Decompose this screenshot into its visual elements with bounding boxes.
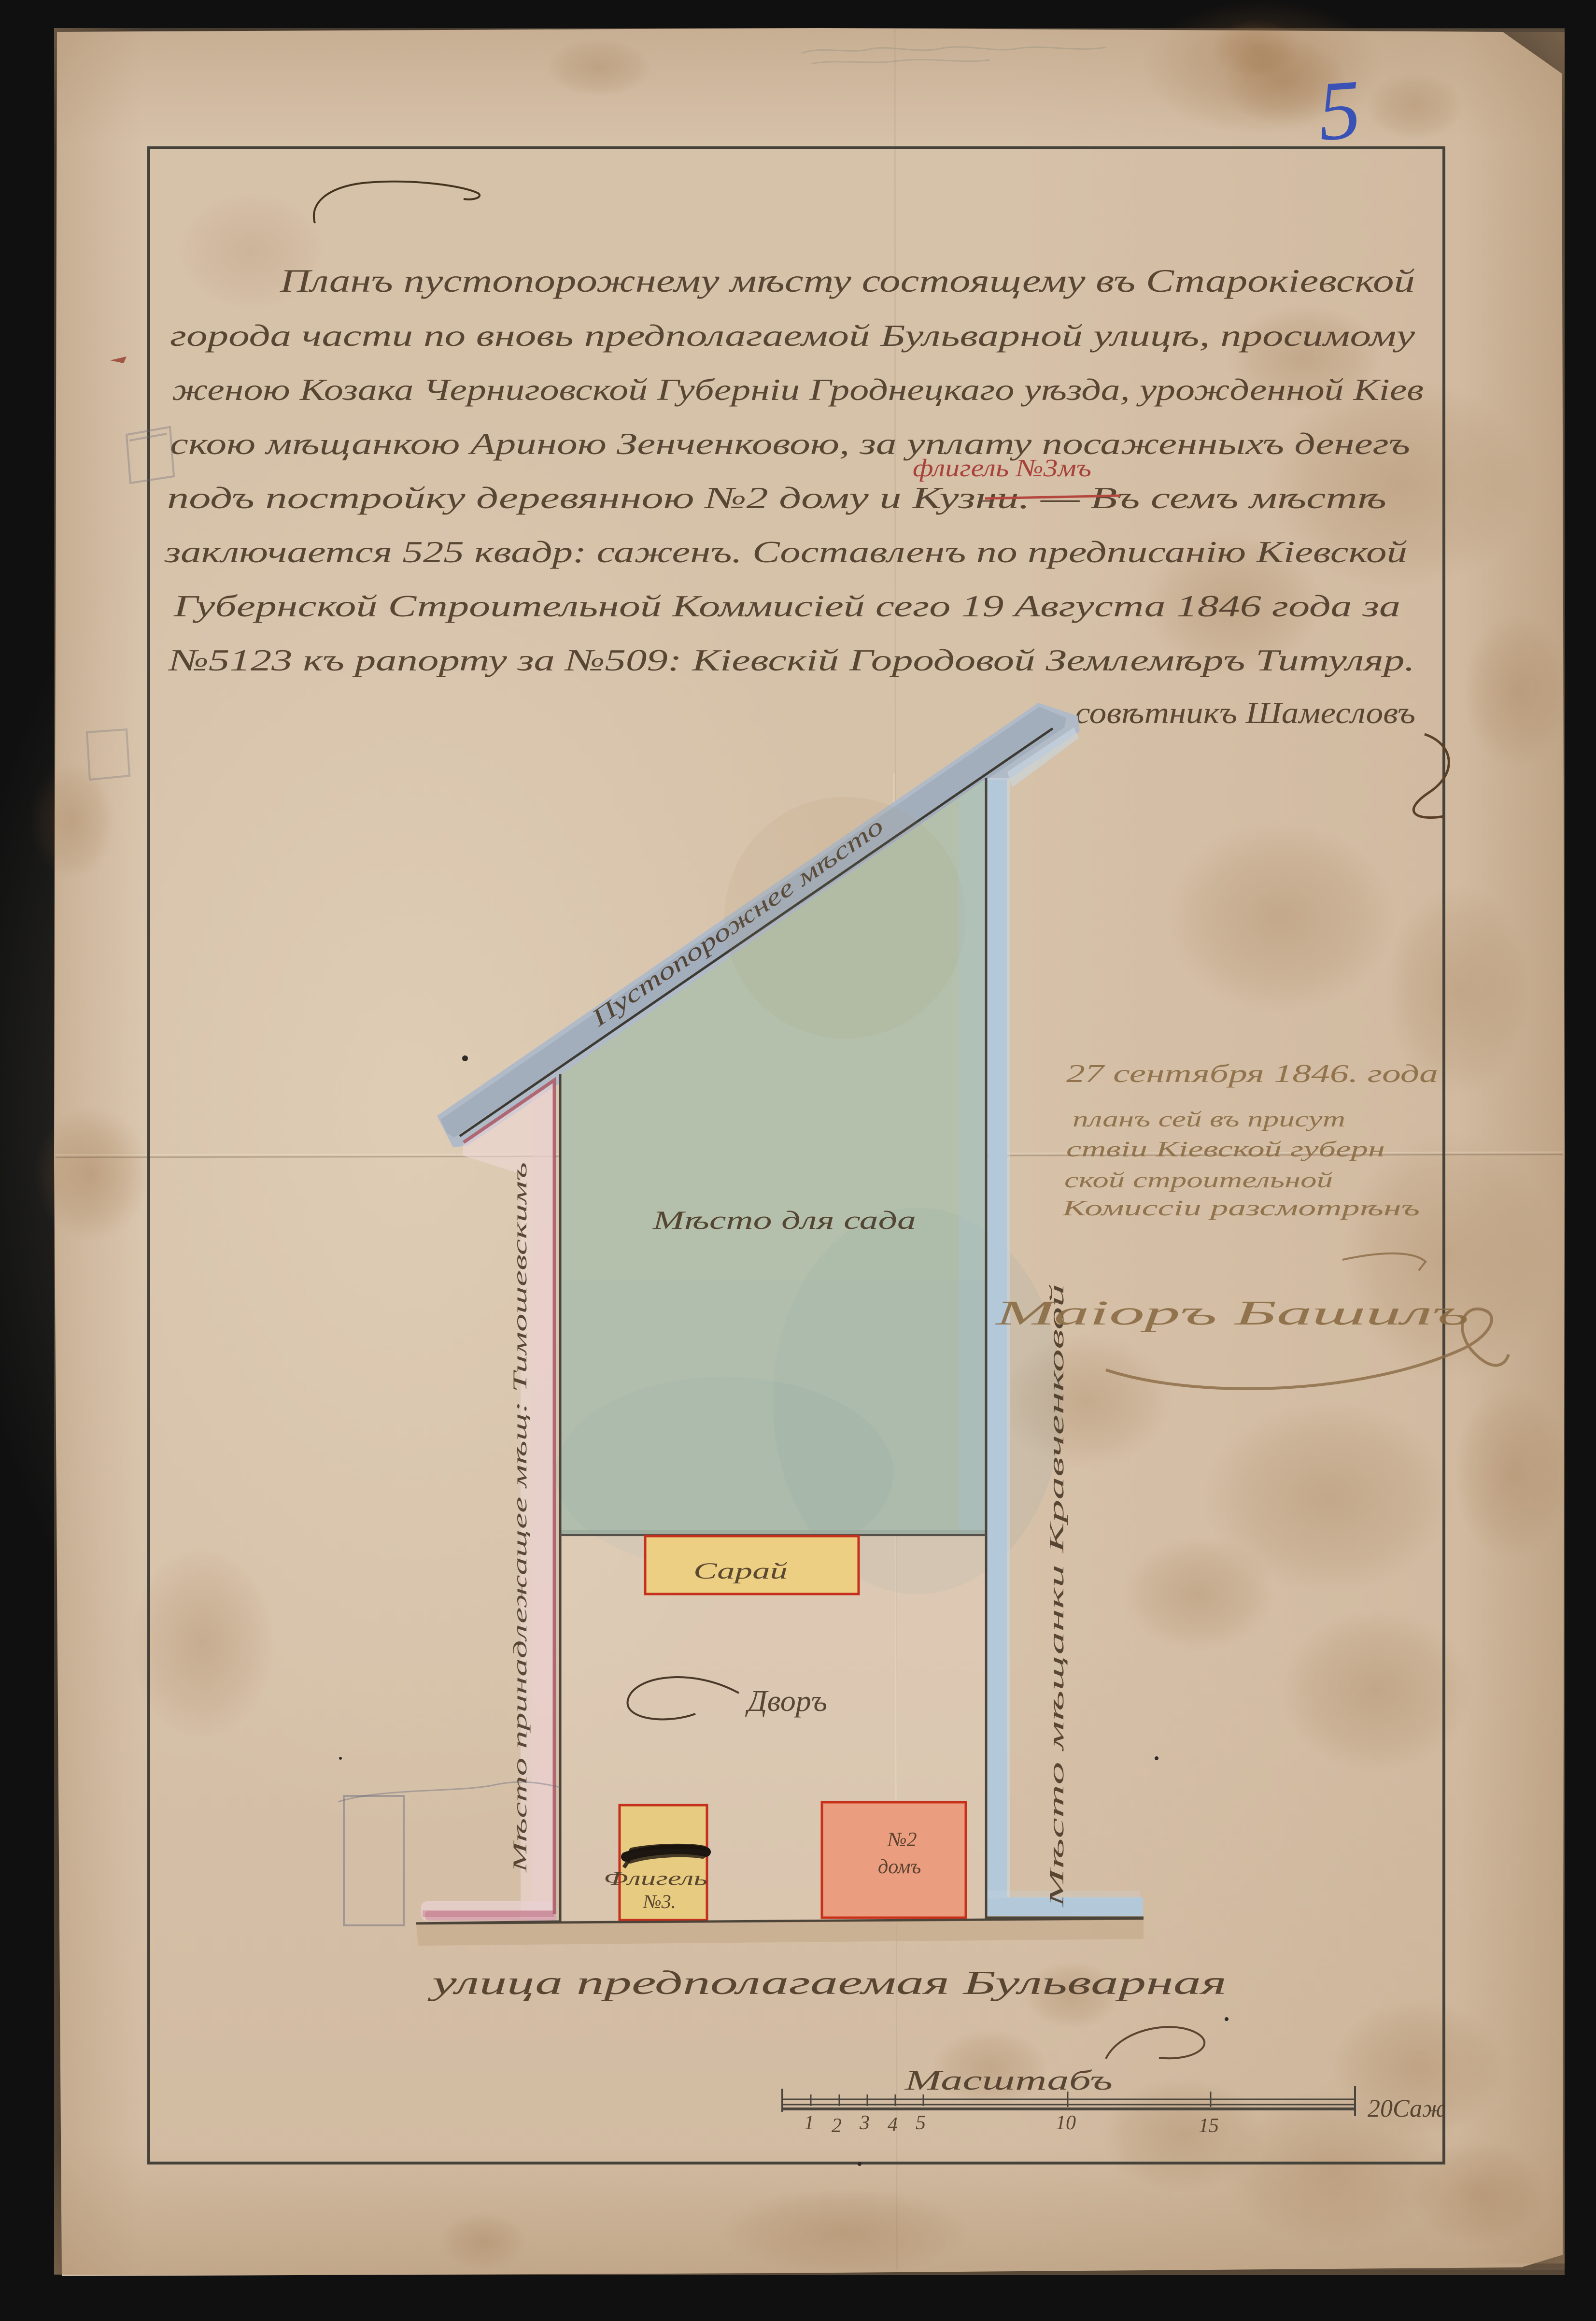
svg-text:Комиссіи разсмотрѣнъ: Комиссіи разсмотрѣнъ <box>1061 1196 1420 1220</box>
svg-text:Мѣсто принадлежащее мѣщ: Тимош: Мѣсто принадлежащее мѣщ: Тимошевскимъ <box>509 1162 531 1873</box>
svg-text:подъ постройку деревянною №2 д: подъ постройку деревянною №2 дому и Кузн… <box>167 481 1386 515</box>
svg-text:1: 1 <box>804 2112 814 2134</box>
svg-text:Мѣсто для сада: Мѣсто для сада <box>652 1206 916 1235</box>
svg-text:15: 15 <box>1199 2115 1219 2137</box>
svg-text:3: 3 <box>859 2112 870 2134</box>
svg-text:Мѣсто мѣщанки Кравченковой: Мѣсто мѣщанки Кравченковой <box>1046 1284 1068 1908</box>
svg-text:№3.: №3. <box>642 1891 676 1912</box>
svg-text:скою мѣщанкою Ариною Зенченков: скою мѣщанкою Ариною Зенченковою, за упл… <box>170 427 1410 461</box>
svg-text:10: 10 <box>1056 2112 1076 2134</box>
svg-text:2: 2 <box>832 2115 842 2137</box>
svg-text:ствіи Кіевской губерн: ствіи Кіевской губерн <box>1066 1137 1385 1161</box>
svg-text:Сарай: Сарай <box>693 1558 788 1584</box>
svg-text:4: 4 <box>888 2114 898 2136</box>
svg-text:улица предполагаемая Бульварна: улица предполагаемая Бульварная <box>427 1965 1227 2002</box>
svg-text:ской строительной: ской строительной <box>1064 1168 1333 1192</box>
svg-text:№5123 къ рапорту за №509: Кіев: №5123 къ рапорту за №509: Кіевскій Город… <box>168 643 1415 677</box>
svg-text:Планъ пустопорожнему мѣсту сос: Планъ пустопорожнему мѣсту состоящему въ… <box>280 262 1415 299</box>
svg-text:Дворъ: Дворъ <box>745 1685 827 1718</box>
svg-text:Масштабъ: Масштабъ <box>904 2065 1113 2096</box>
svg-text:5: 5 <box>916 2112 926 2134</box>
svg-text:совѣтникъ Шамесловъ: совѣтникъ Шамесловъ <box>1075 696 1415 730</box>
svg-text:№2: №2 <box>887 1829 917 1851</box>
svg-text:домъ: домъ <box>878 1856 921 1878</box>
svg-text:Губернской Строительной Коммис: Губернской Строительной Коммисіей сего 1… <box>173 589 1400 623</box>
svg-text:заключается 525 квадр: саженъ.: заключается 525 квадр: саженъ. Составлен… <box>164 535 1407 569</box>
svg-text:города части по вновь предпола: города части по вновь предполагаемой Бул… <box>170 318 1415 353</box>
svg-text:флигель №3мъ: флигель №3мъ <box>913 455 1091 482</box>
svg-text:20Саж: 20Саж <box>1368 2095 1445 2122</box>
svg-text:женою Козака Черниговской Губе: женою Козака Черниговской Губерніи Гродн… <box>172 372 1424 407</box>
svg-text:Маіоръ Башилъ: Маіоръ Башилъ <box>995 1294 1469 1332</box>
svg-text:5: 5 <box>1315 62 1364 158</box>
svg-text:планъ сей въ присут: планъ сей въ присут <box>1073 1107 1345 1131</box>
svg-text:Флигель: Флигель <box>604 1867 707 1889</box>
svg-text:27 сентября 1846. года: 27 сентября 1846. года <box>1066 1060 1438 1088</box>
